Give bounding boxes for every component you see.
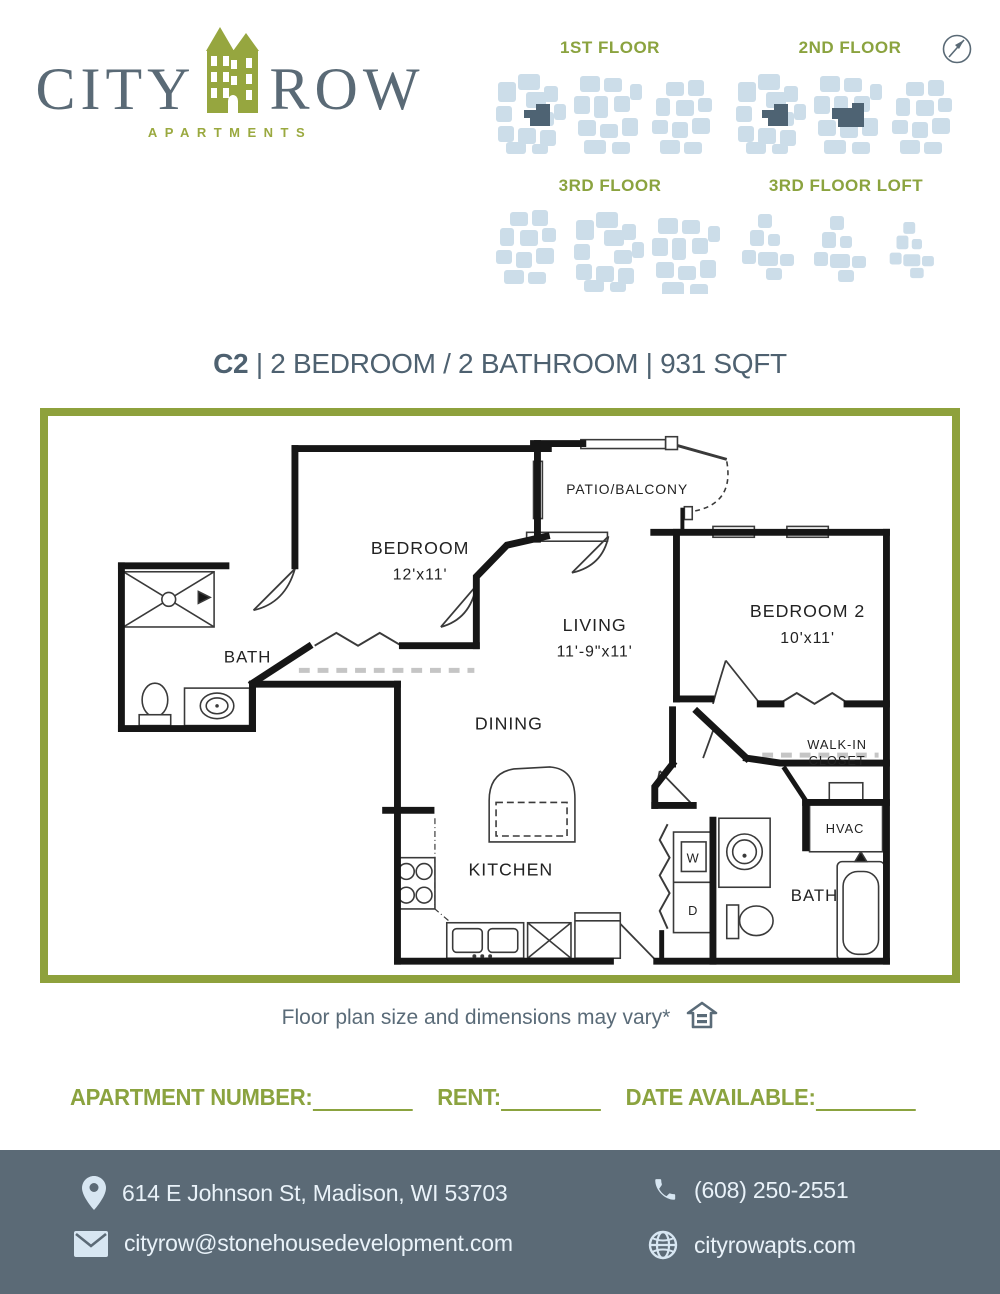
rowhouse-logo-icon [206, 26, 260, 119]
brand-logo: CITY [50, 26, 410, 140]
unit-sqft: 931 SQFT [660, 348, 787, 379]
location-pin-icon [82, 1176, 106, 1210]
room-label: LIVING [563, 615, 627, 635]
floor-map-label-1: 1ST FLOOR [500, 38, 720, 58]
phone-icon [652, 1176, 678, 1204]
title-separator-2: | [646, 348, 653, 379]
floor-map-label-3: 3RD FLOOR [500, 176, 720, 196]
phone-text: (608) 250-2551 [694, 1177, 848, 1204]
envelope-icon [74, 1231, 108, 1257]
form-field-2: RENT: [437, 1084, 625, 1111]
floor-plan-drawing: BEDROOM12'x11'PATIO/BALCONYLIVING11'-9"x… [48, 416, 952, 975]
form-field-label: DATE AVAILABLE: [626, 1084, 816, 1111]
form-field-label: APARTMENT NUMBER: [70, 1084, 312, 1111]
floor-map-3rd-floor-loft [740, 214, 950, 290]
room-label: BATH [791, 886, 838, 905]
flyer-page: { "brand": { "name_left": "CITY", "name_… [0, 0, 1000, 1294]
form-field-label: RENT: [437, 1084, 501, 1111]
room-label: DINING [475, 714, 543, 734]
form-field-3: DATE AVAILABLE: [626, 1084, 941, 1111]
room-label: BEDROOM [371, 538, 470, 558]
compass-icon [938, 30, 976, 73]
email-text: cityrow@stonehousedevelopment.com [124, 1230, 513, 1257]
floor-map-label-4: 3RD FLOOR LOFT [736, 176, 956, 196]
room-label: W [687, 851, 700, 866]
form-field-blank[interactable] [816, 1085, 916, 1111]
address-row: 614 E Johnson St, Madison, WI 53703 [82, 1176, 508, 1210]
equal-housing-icon [686, 1001, 718, 1034]
contact-footer: 614 E Johnson St, Madison, WI 53703 (608… [0, 1150, 1000, 1294]
phone-row: (608) 250-2551 [652, 1176, 848, 1204]
room-label: KITCHEN [468, 859, 553, 879]
floor-plan: BEDROOM12'x11'PATIO/BALCONYLIVING11'-9"x… [40, 408, 960, 983]
unit-specs: 2 BEDROOM / 2 BATHROOM [270, 348, 638, 379]
email-row: cityrow@stonehousedevelopment.com [74, 1230, 513, 1257]
room-label: D [688, 903, 698, 918]
form-field-1: APARTMENT NUMBER: [70, 1084, 437, 1111]
availability-form-line: APARTMENT NUMBER:RENT:DATE AVAILABLE: [70, 1084, 915, 1111]
globe-icon [648, 1230, 678, 1260]
website-row: cityrowapts.com [648, 1230, 856, 1260]
room-label: 12'x11' [393, 567, 448, 584]
title-separator-1: | [256, 348, 263, 379]
form-field-blank[interactable] [501, 1085, 601, 1111]
floor-locator-maps: 1ST FLOOR 2ND FLOOR 3RD FLOOR 3RD FLOOR … [488, 30, 960, 290]
floor-map-3rd-floor [496, 210, 724, 294]
room-label: HVAC [826, 821, 865, 836]
disclaimer-text: Floor plan size and dimensions may vary* [282, 1006, 671, 1030]
address-text: 614 E Johnson St, Madison, WI 53703 [122, 1180, 508, 1207]
room-label: PATIO/BALCONY [566, 482, 688, 497]
brand-name-left: CITY [36, 59, 196, 119]
room-label: BATH [224, 647, 271, 666]
unit-code: C2 [213, 348, 248, 379]
disclaimer-row: Floor plan size and dimensions may vary* [0, 1001, 1000, 1034]
form-field-blank[interactable] [312, 1085, 412, 1111]
floor-map-label-2: 2ND FLOOR [740, 38, 960, 58]
room-label: BEDROOM 2 [750, 601, 865, 621]
floor-map-2nd-floor [736, 74, 964, 158]
website-text: cityrowapts.com [694, 1232, 856, 1259]
room-label: CLOSET [809, 753, 866, 768]
room-label: 11'-9"x11' [557, 644, 633, 661]
unit-title: C2 | 2 BEDROOM / 2 BATHROOM | 931 SQFT [0, 348, 1000, 380]
brand-subtitle: APARTMENTS [50, 125, 410, 140]
room-label: 10'x11' [780, 630, 835, 647]
brand-name-right: ROW [270, 59, 425, 119]
room-label: WALK-IN [807, 737, 867, 752]
floor-map-1st-floor [496, 74, 724, 158]
